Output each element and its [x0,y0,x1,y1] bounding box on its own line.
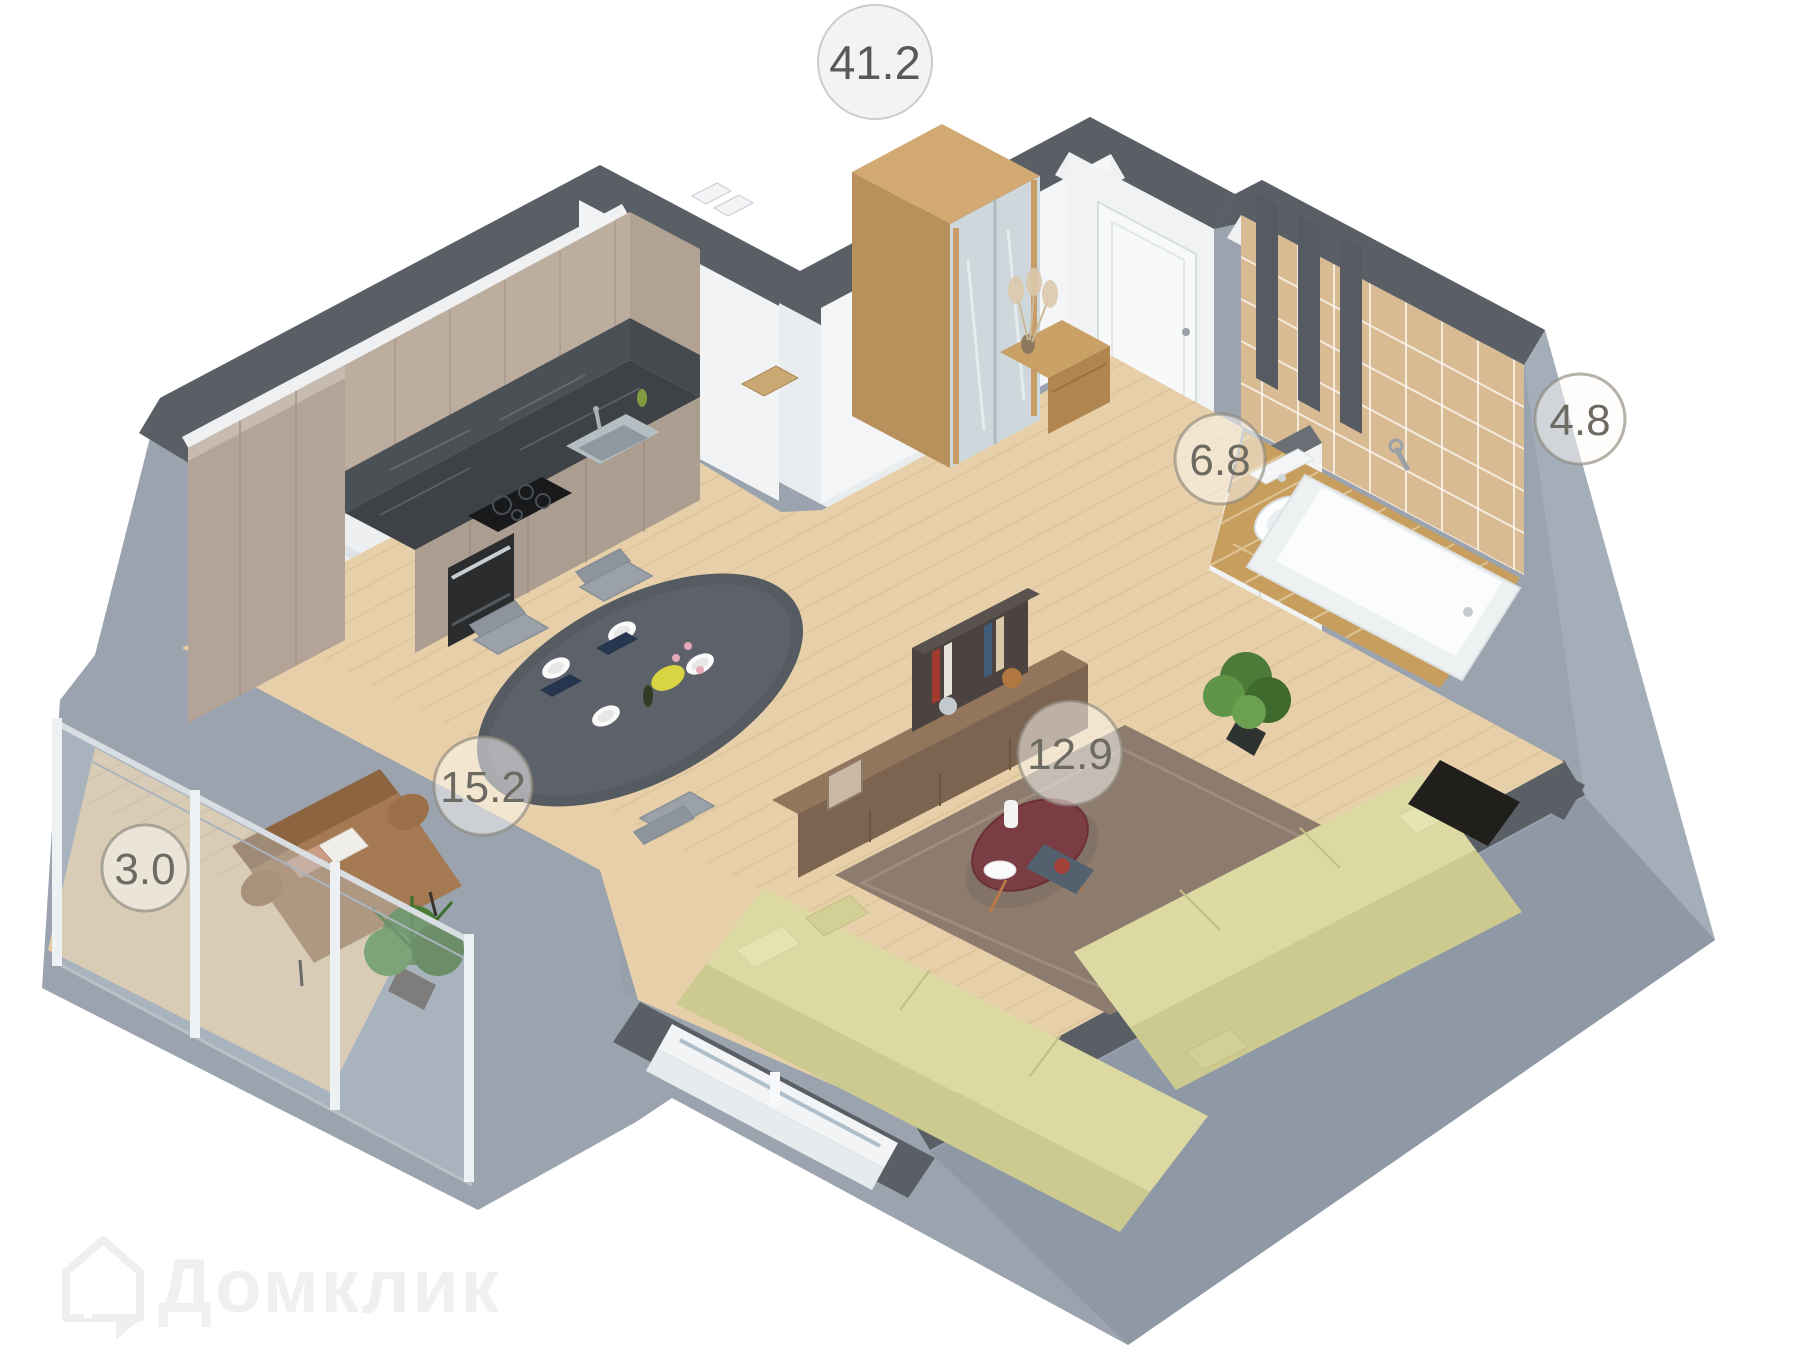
floor-plan-page: 41.2 15.2 12.9 6.8 4.8 3.0 Домклик [0,0,1800,1370]
area-badge-kitchen-dining: 15.2 [434,737,532,835]
kitchen-dining-area-value: 15.2 [440,763,526,812]
vent-shaft [692,183,753,216]
area-badge-balcony: 3.0 [102,825,188,911]
floor-plan-canvas: 41.2 15.2 12.9 6.8 4.8 3.0 Домклик [0,0,1800,1370]
decor-sphere [939,697,957,715]
area-badge-bathroom: 4.8 [1535,374,1625,464]
area-badge-hallway: 6.8 [1175,414,1265,504]
bottle [637,389,647,407]
watermark-brand-text: Домклик [158,1244,501,1329]
total-area-value: 41.2 [829,36,920,89]
hallway-area-value: 6.8 [1189,436,1250,485]
vase [1004,800,1018,828]
living-room-area-value: 12.9 [1027,730,1113,779]
total-area-badge: 41.2 [818,5,932,119]
plate [984,861,1016,879]
door-handle-icon [1182,328,1190,336]
area-badge-living-room: 12.9 [1018,701,1122,805]
balcony-area-value: 3.0 [114,845,175,894]
watermark: Домклик [66,1240,501,1340]
gold-vase [1002,668,1022,688]
wine-bottle [643,685,653,707]
domclick-logo-icon [66,1240,142,1340]
bathroom-area-value: 4.8 [1549,396,1610,445]
